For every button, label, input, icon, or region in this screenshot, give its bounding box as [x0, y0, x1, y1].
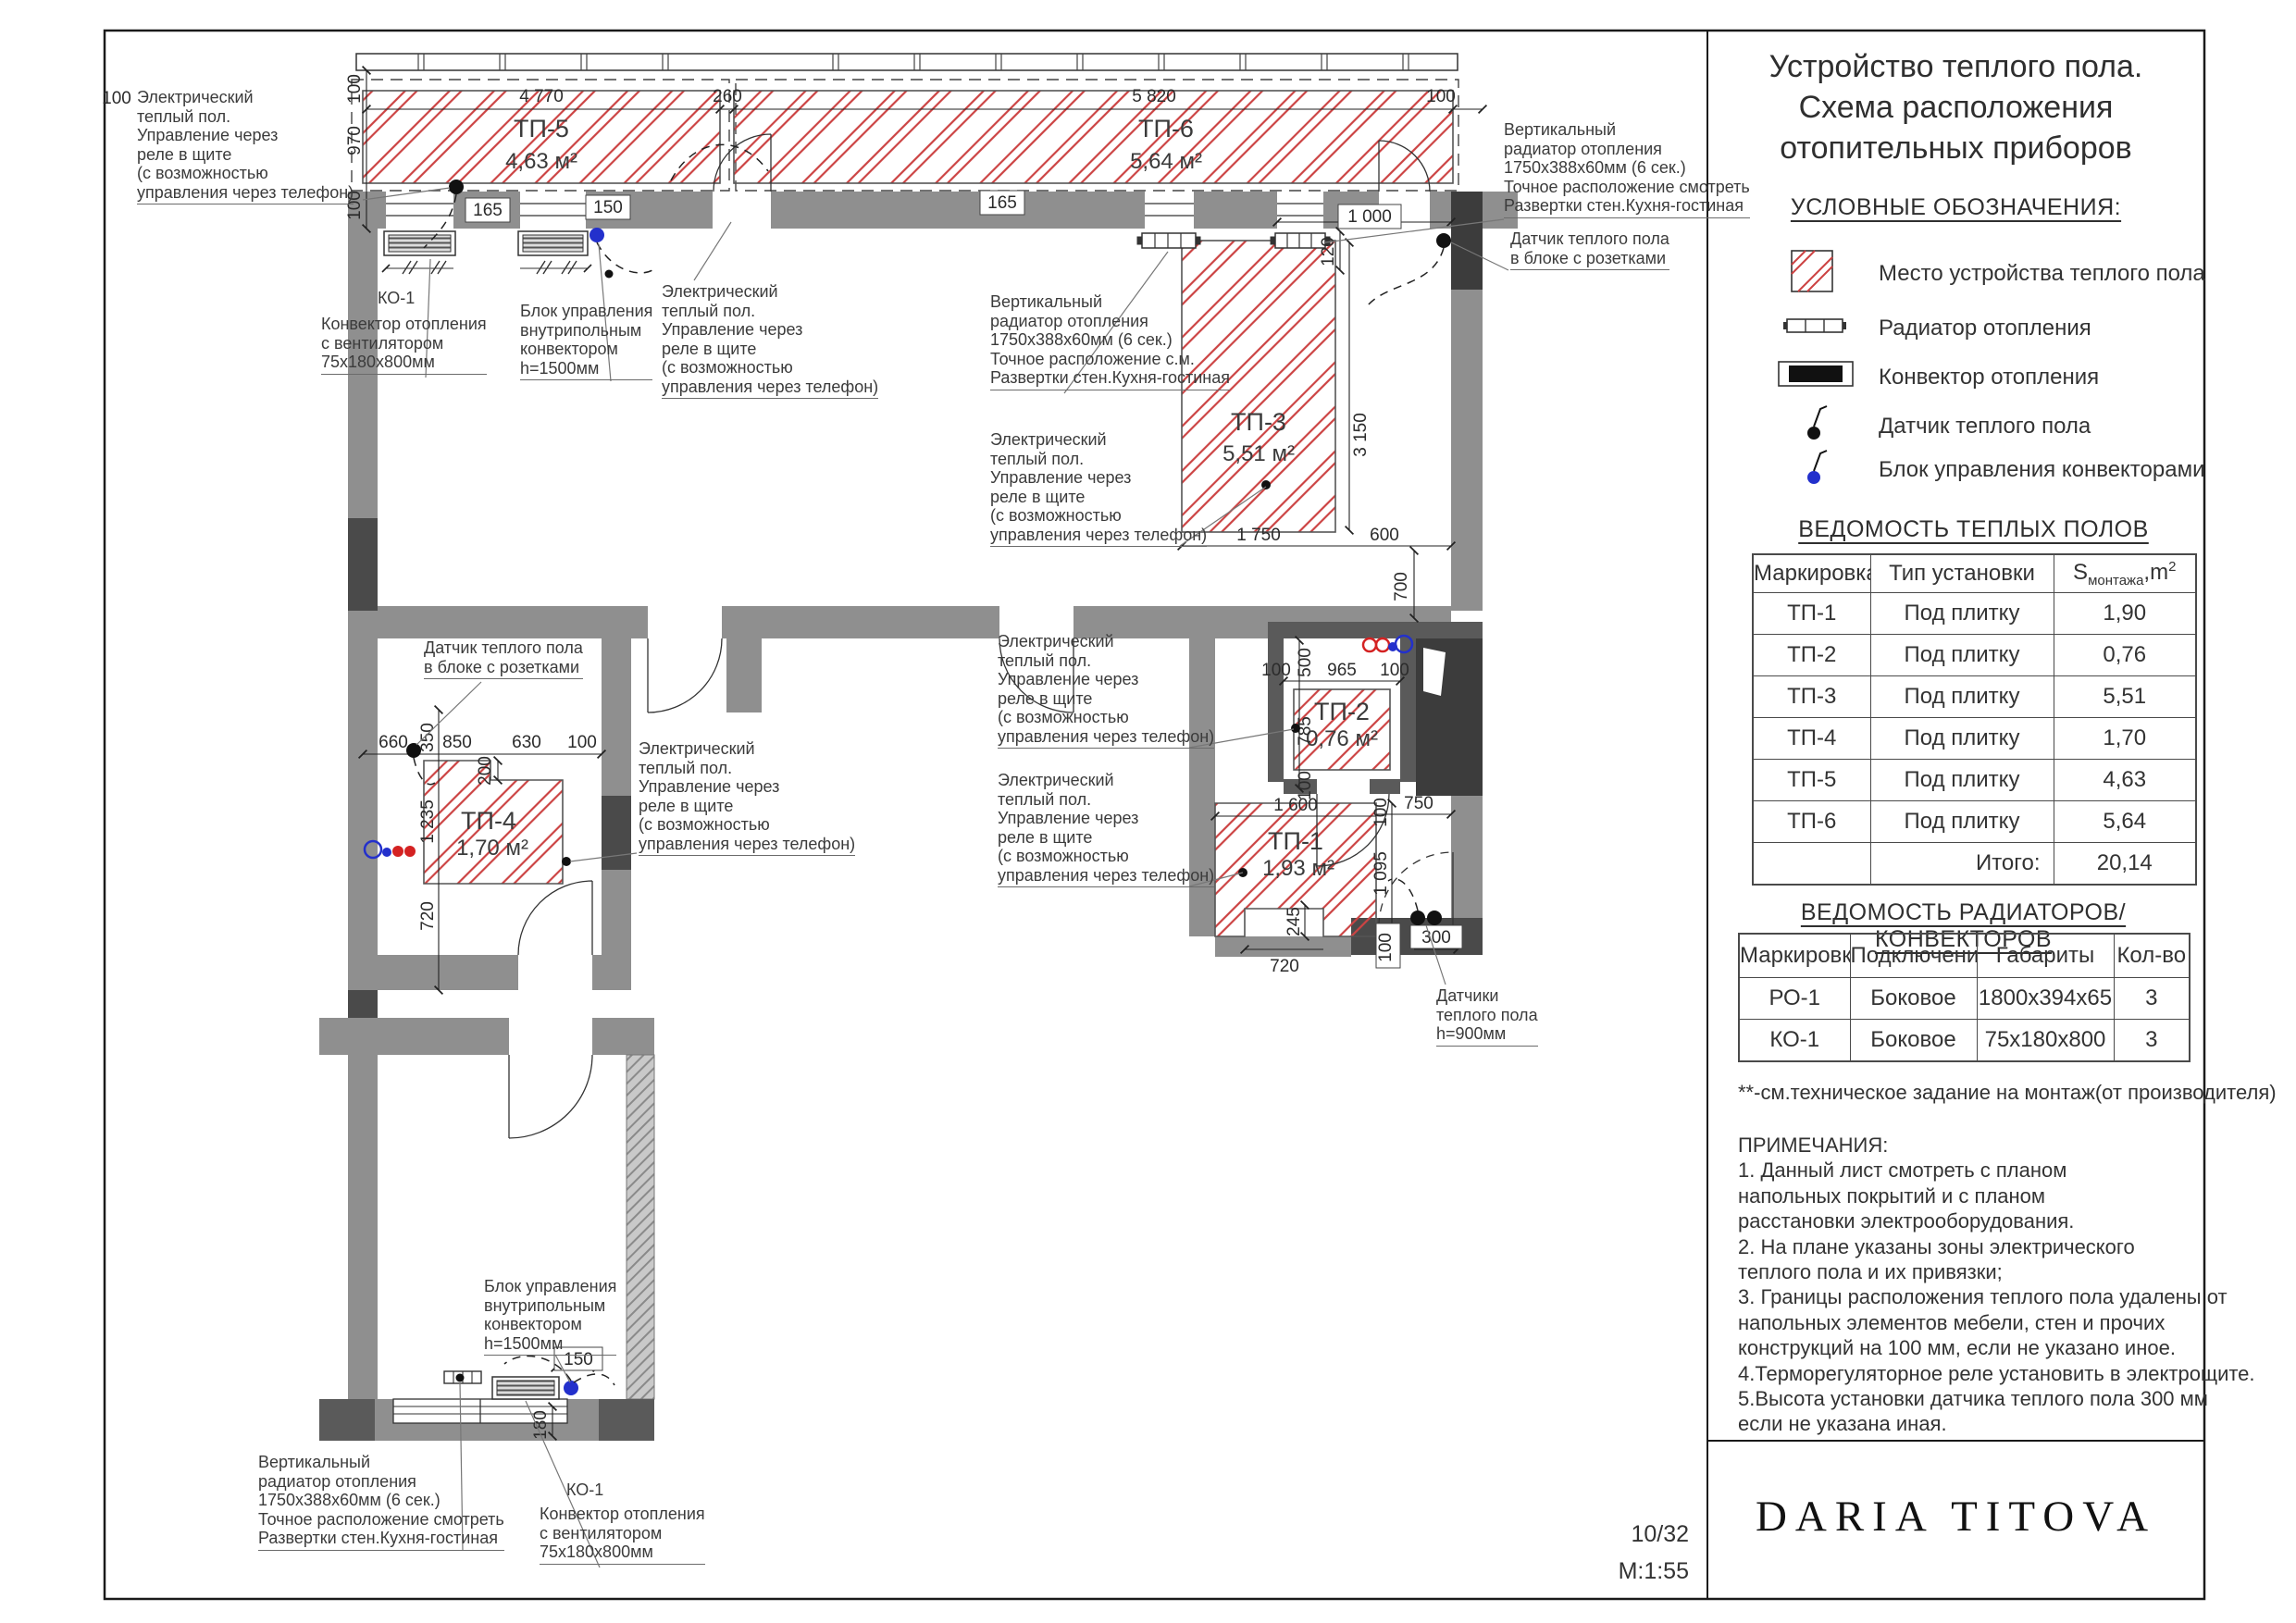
floor-sensor-dot: [1410, 911, 1425, 925]
svg-text:245: 245: [1285, 907, 1304, 936]
svg-text:5 820: 5 820: [1132, 87, 1176, 106]
table-row: ТП-6Под плитку5,64: [1753, 801, 2196, 843]
warm-floor-table-heading: ВЕДОМОСТЬ ТЕПЛЫХ ПОЛОВ: [1752, 516, 2195, 543]
legend-item-label: Блок управления конвекторами: [1879, 457, 2204, 483]
table-row: ТП-3Под плитку5,51: [1753, 676, 2196, 718]
svg-text:600: 600: [1370, 526, 1399, 545]
svg-text:850: 850: [442, 733, 472, 752]
svg-text:660: 660: [379, 733, 408, 752]
label-convector-fan: Конвектор отопления с вентилятором 75х18…: [321, 315, 487, 375]
table-row: РО-1Боковое1800х394х653: [1739, 978, 2190, 1020]
legend-item-label: Датчик теплого пола: [1879, 414, 2091, 440]
convector-ko1-top-mid: [518, 231, 588, 255]
col-marking: Маркировка: [1753, 554, 1870, 593]
col-dimensions: Габариты: [1977, 934, 2114, 978]
warm-floor-table: Маркировка Тип установки Sмонтажа,m2 ТП-…: [1752, 553, 2197, 886]
svg-text:ТП-3: ТП-3: [1231, 408, 1286, 436]
label-sensor-sockets: Датчик теплого пола в блоке с розетками: [424, 638, 583, 679]
svg-text:150: 150: [593, 198, 623, 217]
label-electric-floor: Электрический теплый пол. Управление чер…: [998, 632, 1214, 749]
svg-text:100: 100: [567, 733, 597, 752]
table-row: ТП-5Под плитку4,63: [1753, 760, 2196, 801]
svg-text:ТП-2: ТП-2: [1314, 698, 1370, 725]
legend-item-label: Радиатор отопления: [1879, 316, 2091, 341]
sheet-number: 10/32: [1564, 1516, 1689, 1553]
col-marking: Маркировка: [1739, 934, 1850, 978]
svg-text:1 000: 1 000: [1347, 207, 1392, 227]
svg-text:500: 500: [1296, 648, 1315, 677]
label-ko1: КО-1: [566, 1481, 603, 1500]
svg-text:260: 260: [713, 87, 742, 106]
legend-item-label: Место устройства теплого пола: [1879, 261, 2205, 287]
author-logo: DARIA TITOVA: [1707, 1492, 2204, 1542]
page-title: Устройство теплого пола. Схема расположе…: [1707, 46, 2204, 168]
sheet-scale: М:1:55: [1564, 1553, 1689, 1590]
radiator-ro1-top-1: [1137, 233, 1200, 248]
floor-sensor-dot: [449, 180, 464, 194]
label-vert-radiator: Вертикальный радиатор отопления 1750х388…: [990, 292, 1230, 390]
svg-text:100: 100: [1380, 661, 1409, 680]
convector-icon: [1778, 361, 1854, 387]
svg-text:100: 100: [1371, 798, 1391, 827]
label-control-unit: Блок управления внутрипольным конвекторо…: [520, 302, 652, 380]
floor-sensor-dot: [406, 743, 421, 758]
convector-ko1-top-left: [384, 231, 455, 255]
svg-text:ТП-4: ТП-4: [461, 807, 516, 835]
col-install-type: Тип установки: [1870, 554, 2054, 593]
label-electric-floor: Электрический теплый пол. Управление чер…: [998, 771, 1214, 887]
table-row: КО-1Боковое75х180х8003: [1739, 1020, 2190, 1062]
legend-item-label: Конвектор отопления: [1879, 365, 2099, 390]
svg-text:1,93 м²: 1,93 м²: [1262, 856, 1334, 881]
svg-text:630: 630: [512, 733, 541, 752]
col-area: Sмонтажа,m2: [2054, 554, 2196, 593]
label-vert-radiator: Вертикальный радиатор отопления 1750х388…: [258, 1453, 504, 1551]
svg-text:4 770: 4 770: [519, 87, 564, 106]
floor-sensor-dot: [1436, 233, 1451, 248]
label-sensor-sockets: Датчик теплого пола в блоке с розетками: [1510, 229, 1669, 270]
table-header-row: Маркировка Подключение Габариты Кол-во: [1739, 934, 2190, 978]
table-header-row: Маркировка Тип установки Sмонтажа,m2: [1753, 554, 2196, 593]
convector-control-dot: [564, 1381, 578, 1395]
svg-text:100: 100: [1376, 933, 1396, 962]
col-connection: Подключение: [1850, 934, 1977, 978]
convector-control-unit-icon: [1801, 444, 1834, 487]
label-electric-floor: Электрический теплый пол. Управление чер…: [137, 88, 354, 204]
svg-text:200: 200: [476, 756, 495, 786]
label-ko1: КО-1: [378, 289, 415, 308]
radiator-table: Маркировка Подключение Габариты Кол-во Р…: [1738, 933, 2191, 1062]
total-value: 20,14: [2054, 843, 2196, 886]
svg-text:5,64 м²: 5,64 м²: [1130, 149, 1202, 174]
notes: ПРИМЕЧАНИЯ: 1. Данный лист смотреть с пл…: [1738, 1133, 2255, 1437]
label-electric-floor: Электрический теплый пол. Управление чер…: [662, 282, 878, 399]
svg-text:ТП-1: ТП-1: [1268, 827, 1323, 855]
break-marks: [403, 261, 577, 274]
col-qty: Кол-во: [2114, 934, 2190, 978]
zone-tp6: [734, 91, 1453, 183]
svg-text:165: 165: [987, 193, 1017, 213]
svg-text:700: 700: [1392, 572, 1411, 601]
label-electric-floor: Электрический теплый пол. Управление чер…: [639, 739, 855, 856]
legend-heading: УСЛОВНЫЕ ОБОЗНАЧЕНИЯ:: [1707, 194, 2204, 221]
total-label: Итого:: [1870, 843, 2054, 886]
footnote: **-см.техническое задание на монтаж(от п…: [1738, 1081, 2277, 1105]
convector-ko1-bottom: [492, 1377, 559, 1399]
convector-control-dot: [590, 228, 604, 242]
label-convector-fan: Конвектор отопления с вентилятором 75х18…: [540, 1505, 705, 1565]
svg-text:0,76 м²: 0,76 м²: [1306, 726, 1378, 751]
svg-text:165: 165: [473, 201, 503, 220]
svg-text:1 600: 1 600: [1273, 796, 1318, 815]
table-row: ТП-4Под плитку1,70: [1753, 718, 2196, 760]
svg-text:1 095: 1 095: [1371, 851, 1391, 896]
label-electric-floor: Электрический теплый пол. Управление чер…: [990, 430, 1207, 547]
svg-text:750: 750: [1404, 794, 1433, 813]
svg-text:5,51 м²: 5,51 м²: [1222, 441, 1295, 466]
svg-text:720: 720: [1270, 957, 1299, 976]
svg-text:300: 300: [1421, 928, 1451, 948]
svg-text:1,70 м²: 1,70 м²: [456, 836, 528, 861]
table-row: ТП-1Под плитку1,90: [1753, 593, 2196, 635]
label-control-unit: Блок управления внутрипольным конвекторо…: [484, 1277, 616, 1356]
svg-text:4,63 м²: 4,63 м²: [505, 149, 577, 174]
table-row: ТП-2Под плитку0,76: [1753, 635, 2196, 676]
drawing-sheet: { "sheet": { "number": "10/32", "scale":…: [0, 0, 2296, 1623]
svg-text:100: 100: [1261, 661, 1291, 680]
label-sensors-h900: Датчики теплого пола h=900мм: [1436, 986, 1538, 1047]
table-total-row: Итого: 20,14: [1753, 843, 2196, 886]
svg-text:100: 100: [1426, 87, 1456, 106]
zone-label: ТП-5: [514, 115, 569, 142]
svg-text:3 150: 3 150: [1351, 413, 1371, 457]
svg-text:720: 720: [418, 901, 438, 931]
svg-text:1 235: 1 235: [418, 799, 438, 844]
svg-text:965: 965: [1327, 661, 1357, 680]
svg-text:1 750: 1 750: [1236, 526, 1281, 545]
floor-sensor-icon: [1801, 400, 1834, 442]
warm-floor-hatch-icon: [1791, 250, 1833, 292]
svg-text:ТП-6: ТП-6: [1138, 115, 1194, 142]
floor-sensor-dot: [1427, 911, 1442, 925]
svg-text:100: 100: [102, 89, 131, 108]
radiator-icon: [1782, 316, 1847, 335]
